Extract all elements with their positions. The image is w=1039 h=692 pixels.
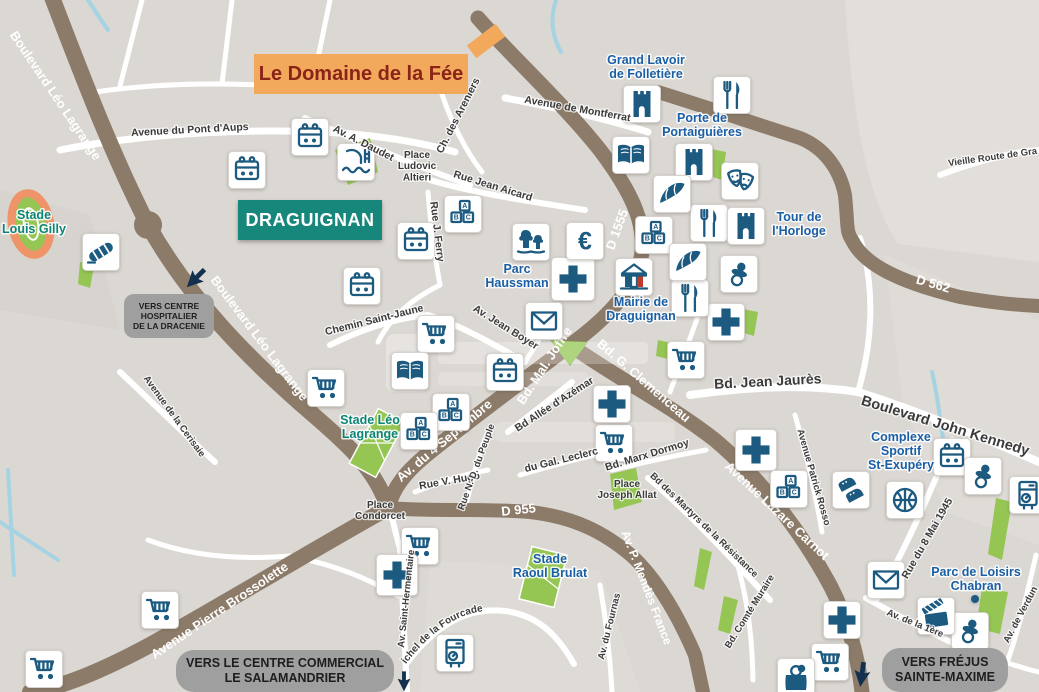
badge-frejus-direction: VERS FRÉJUSSAINTE-MAXIME <box>882 648 1008 692</box>
euro-icon[interactable] <box>567 223 604 260</box>
roundabout <box>134 211 162 239</box>
trees-icon-shape[interactable] <box>513 224 550 261</box>
badge-line: VERS CENTRE <box>124 301 214 311</box>
castle-icon[interactable] <box>676 144 713 181</box>
school-icon[interactable] <box>433 394 470 431</box>
calendar-icon-shape[interactable] <box>344 268 381 305</box>
badge-line: LE SALAMANDRIER <box>176 671 394 686</box>
castle-icon[interactable] <box>728 208 765 245</box>
dot-icon[interactable] <box>971 595 979 603</box>
fork-knife-icon-shape[interactable] <box>691 205 728 242</box>
cart-icon[interactable] <box>418 316 455 353</box>
title-banner: Le Domaine de la Fée <box>254 54 468 94</box>
calendar-icon-shape[interactable] <box>487 354 524 391</box>
map-image: ABC <box>0 0 1039 692</box>
pacifier-icon[interactable] <box>952 613 989 650</box>
school-icon[interactable] <box>401 413 438 450</box>
shoes-icon[interactable] <box>833 472 870 509</box>
calendar-icon-shape[interactable] <box>398 223 435 260</box>
fork-knife-icon[interactable] <box>672 280 709 317</box>
book-icon-shape[interactable] <box>397 361 423 380</box>
shoes-icon-shape[interactable] <box>833 472 870 509</box>
map-canvas[interactable]: ABC <box>0 0 1039 692</box>
cart-icon[interactable] <box>308 370 345 407</box>
poi-label: Mairie deDraguignan <box>606 295 675 323</box>
badge-line: VERS LE CENTRE COMMERCIAL <box>176 656 394 671</box>
poi-label: Tour del'Horloge <box>772 210 826 238</box>
badge-mall-direction: VERS LE CENTRE COMMERCIALLE SALAMANDRIER <box>176 650 394 692</box>
fork-knife-icon[interactable] <box>714 77 751 114</box>
badge-hospital-direction: VERS CENTREHOSPITALIERDE LA DRACENIE <box>124 294 214 338</box>
shopping-bag-icon[interactable] <box>778 659 815 692</box>
poi-label: Grand Lavoirde Folletière <box>607 53 685 81</box>
croissant-icon[interactable] <box>654 176 691 213</box>
school-icon[interactable] <box>636 217 673 254</box>
calendar-icon[interactable] <box>292 119 329 156</box>
cart-icon[interactable] <box>26 651 63 688</box>
masks-icon[interactable] <box>722 163 759 200</box>
school-icon[interactable] <box>445 196 482 233</box>
basketball-icon[interactable] <box>887 482 924 519</box>
cross-icon[interactable] <box>708 304 745 341</box>
pacifier-icon[interactable] <box>965 458 1002 495</box>
school-icon[interactable] <box>771 471 808 508</box>
cross-icon[interactable] <box>552 258 595 301</box>
ticket-machine-icon[interactable] <box>437 635 474 672</box>
envelope-icon[interactable] <box>526 303 563 340</box>
cart-icon[interactable] <box>668 342 705 379</box>
pacifier-icon[interactable] <box>721 256 758 293</box>
book-icon-shape[interactable] <box>618 145 644 164</box>
badge-line: DE LA DRACENIE <box>124 321 214 331</box>
fork-knife-icon-shape[interactable] <box>714 77 751 114</box>
cross-icon[interactable] <box>736 430 777 471</box>
calendar-icon-shape[interactable] <box>229 152 266 189</box>
calendar-icon-shape[interactable] <box>292 119 329 156</box>
badge-line: VERS FRÉJUS <box>882 655 1008 670</box>
calendar-icon[interactable] <box>398 223 435 260</box>
calendar-icon[interactable] <box>229 152 266 189</box>
envelope-icon[interactable] <box>868 562 905 599</box>
badge-line: HOSPITALIER <box>124 311 214 321</box>
dot-icon-shape[interactable] <box>971 595 979 603</box>
poi-label: Stade LéoLagrange <box>340 413 400 441</box>
book-icon[interactable] <box>392 353 429 390</box>
cross-icon[interactable] <box>824 602 861 639</box>
town-hall-icon[interactable] <box>616 259 653 296</box>
croissant-icon[interactable] <box>670 244 707 281</box>
book-icon[interactable] <box>613 137 650 174</box>
calendar-icon[interactable] <box>487 354 524 391</box>
badge-line: SAINTE-MAXIME <box>882 670 1008 685</box>
basketball-icon-shape[interactable] <box>894 489 916 511</box>
city-name-box: DRAGUIGNAN <box>238 200 382 240</box>
trees-icon[interactable] <box>513 224 550 261</box>
calendar-icon[interactable] <box>344 268 381 305</box>
fork-knife-icon-shape[interactable] <box>672 280 709 317</box>
ticket-machine-icon[interactable] <box>1010 477 1039 514</box>
cross-icon[interactable] <box>594 386 631 423</box>
cart-icon[interactable] <box>142 592 179 629</box>
bridge-icon[interactable] <box>83 234 120 271</box>
euro-icon-shape[interactable] <box>578 228 592 256</box>
cart-icon[interactable] <box>812 644 849 681</box>
fork-knife-icon[interactable] <box>691 205 728 242</box>
